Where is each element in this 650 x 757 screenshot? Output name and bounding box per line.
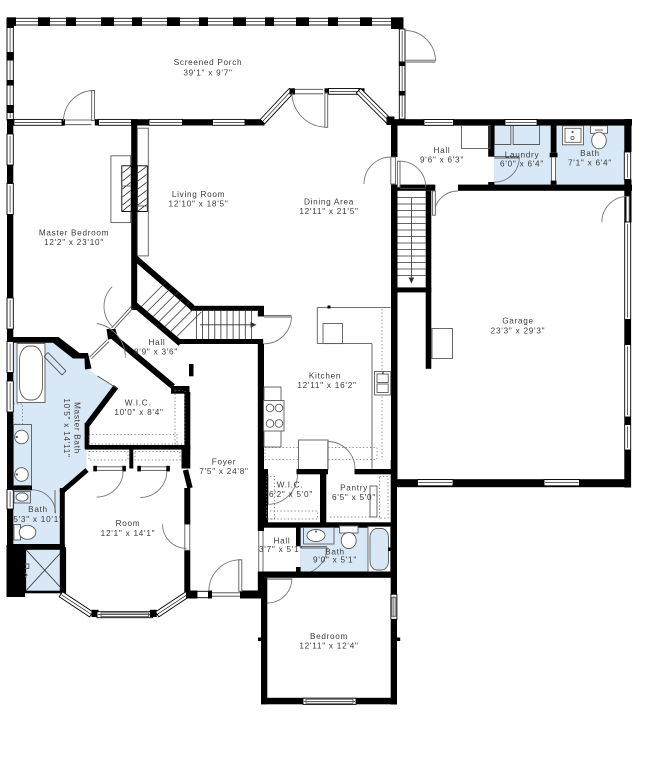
svg-text:12'11" x 21'5": 12'11" x 21'5"	[299, 207, 358, 216]
svg-text:39'1" x 9'7": 39'1" x 9'7"	[183, 69, 232, 78]
svg-text:12'2" x 23'10": 12'2" x 23'10"	[44, 238, 104, 247]
svg-text:Screened Porch: Screened Porch	[174, 58, 243, 67]
svg-text:5'3" x 10'1": 5'3" x 10'1"	[13, 515, 62, 524]
svg-text:W.I.C.: W.I.C.	[277, 481, 304, 490]
svg-text:Foyer: Foyer	[212, 458, 236, 467]
svg-text:8'9" x 3'6": 8'9" x 3'6"	[134, 348, 178, 357]
svg-text:6'5" x 5'0": 6'5" x 5'0"	[332, 493, 376, 502]
svg-text:3'7" x 5'1": 3'7" x 5'1"	[259, 545, 303, 554]
svg-text:12'1" x 14'1": 12'1" x 14'1"	[101, 529, 156, 538]
svg-text:10'5" x 14'11": 10'5" x 14'11"	[62, 398, 71, 457]
svg-text:Bedroom: Bedroom	[310, 632, 348, 641]
svg-text:12'10" x 18'5": 12'10" x 18'5"	[169, 200, 229, 209]
svg-text:Master Bedroom: Master Bedroom	[39, 229, 109, 238]
svg-text:7'1" x 6'4": 7'1" x 6'4"	[568, 159, 612, 168]
svg-text:Dining Area: Dining Area	[304, 198, 354, 207]
svg-text:Bath: Bath	[580, 149, 600, 158]
svg-text:6'2" x 5'0": 6'2" x 5'0"	[269, 490, 313, 499]
svg-text:Kitchen: Kitchen	[309, 372, 341, 381]
svg-text:23'3" x 29'3": 23'3" x 29'3"	[491, 327, 546, 336]
svg-text:Pantry: Pantry	[340, 484, 368, 493]
svg-text:6'0" x 6'4": 6'0" x 6'4"	[500, 160, 544, 169]
svg-text:9'0" x 5'1": 9'0" x 5'1"	[313, 556, 357, 565]
svg-text:Bath: Bath	[28, 505, 48, 514]
svg-text:7'5" x 24'8": 7'5" x 24'8"	[199, 467, 248, 476]
svg-text:10'0" x 8'4": 10'0" x 8'4"	[114, 408, 163, 417]
svg-text:Living Room: Living Room	[172, 190, 225, 199]
svg-text:9'6" x 6'3": 9'6" x 6'3"	[420, 156, 464, 165]
svg-text:Garage: Garage	[502, 317, 534, 326]
svg-text:Laundry: Laundry	[505, 151, 540, 160]
svg-text:W.I.C.: W.I.C.	[125, 399, 152, 408]
svg-text:Master Bath: Master Bath	[73, 402, 82, 454]
svg-text:Room: Room	[116, 519, 141, 528]
svg-text:12'11" x 12'4": 12'11" x 12'4"	[299, 642, 358, 651]
svg-text:12'11" x 16'2": 12'11" x 16'2"	[297, 381, 356, 390]
svg-text:Hall: Hall	[149, 338, 166, 347]
svg-text:Hall: Hall	[434, 146, 451, 155]
